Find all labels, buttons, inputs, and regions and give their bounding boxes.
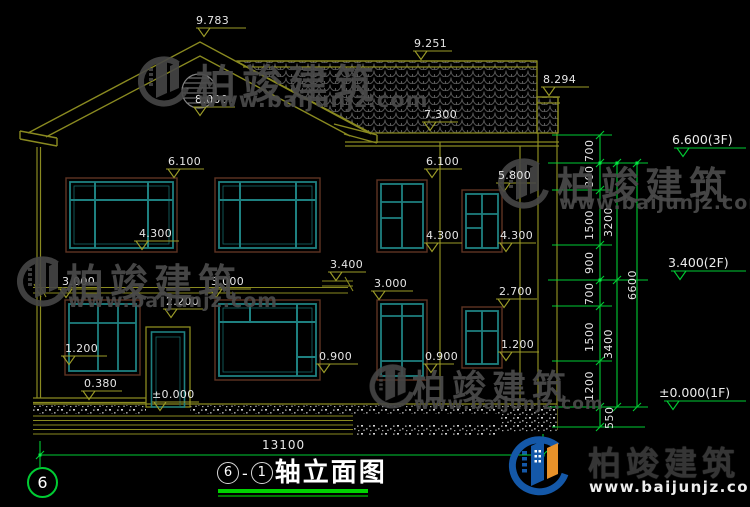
level-label-rear-ridge: 9.251	[414, 38, 447, 50]
title-axis-to: 1	[251, 462, 273, 484]
floor-mark-1f: ±0.000(1F)	[659, 385, 730, 400]
plinth-lines	[33, 416, 353, 434]
title-text: 轴立面图	[275, 459, 387, 487]
title-axis-from: 6	[217, 462, 239, 484]
dim-700-b: 700	[583, 281, 596, 307]
dim-6600: 6600	[626, 262, 639, 308]
level-label-w2f-mid-top: 6.100	[426, 156, 459, 168]
level-label-w1f-small-sill: 1.200	[501, 339, 534, 351]
level-label-w1f-mid-sill: 0.900	[319, 351, 352, 363]
level-label-w2f-left-top: 6.100	[168, 156, 201, 168]
watermark-url-top: www.baijunjz.com	[198, 88, 429, 112]
dim-1500-b: 1500	[583, 313, 596, 361]
window-2f-right-small	[462, 190, 502, 252]
level-label-ridge: 9.783	[196, 15, 229, 27]
level-label-w1f-right-top: 3.000	[374, 278, 407, 290]
level-label-w2f-left-sill: 4.300	[139, 228, 172, 240]
title-underline-shadow	[218, 495, 368, 497]
drawing-title: 6 - 1 轴立面图	[217, 459, 387, 487]
axis-bubble: 6	[27, 467, 58, 498]
dim-550: 550	[603, 406, 616, 430]
level-label-side-roof: 8.294	[543, 74, 576, 86]
brand-logo	[512, 440, 565, 492]
level-label-ground: ±0.000	[152, 389, 195, 401]
dim-overall-width: 13100	[262, 438, 305, 452]
level-label-eave: 7.300	[424, 109, 457, 121]
watermark-url-right: www.baijunjz.com	[559, 192, 750, 214]
level-label-w2f-right-sill: 4.300	[500, 230, 533, 242]
watermark-url-bottom: www.baijunjz.com	[414, 394, 604, 414]
level-label-porch: 0.380	[84, 378, 117, 390]
title-underline	[218, 489, 368, 493]
floor-mark-2f: 3.400(2F)	[668, 255, 729, 270]
dim-900: 900	[583, 248, 596, 278]
level-label-w1f-small-top: 2.700	[499, 286, 532, 298]
level-label-w2f-right-top: 5.800	[498, 170, 531, 182]
floor-mark-3f: 6.600(3F)	[672, 132, 733, 147]
cad-elevation-canvas: 9.783 8.000 9.251 8.294 7.300 6.100 6.10…	[0, 0, 750, 507]
dim-3400: 3400	[602, 321, 615, 367]
brand-site-url: www.baijunjz.com	[589, 478, 750, 496]
level-label-w2f-mid-sill: 4.300	[426, 230, 459, 242]
window-1f-right-small	[462, 307, 502, 368]
title-dash: -	[242, 464, 248, 483]
level-label-w1f-left-sill: 1.200	[65, 343, 98, 355]
window-1f-mid	[215, 300, 320, 380]
window-2f-mid	[215, 178, 320, 252]
watermark-url-left: www.baijunjz.com	[68, 290, 278, 312]
level-label-floor2: 3.400	[330, 259, 363, 271]
window-2f-right-tall	[377, 180, 427, 252]
